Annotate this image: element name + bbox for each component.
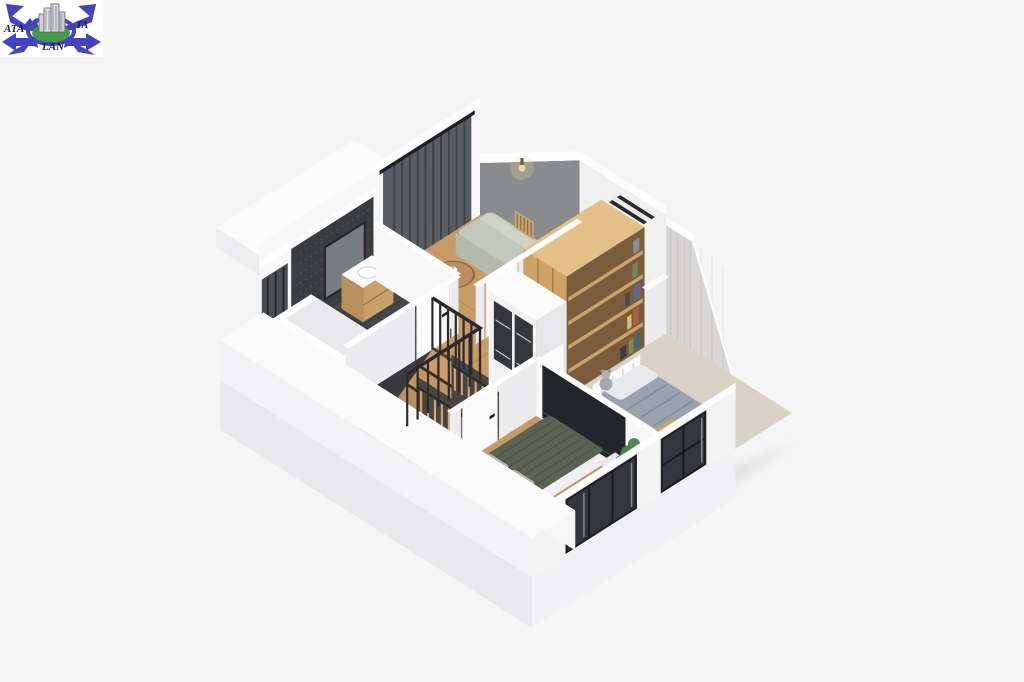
isometric-floorplan-scene: ATA TA LAN xyxy=(0,0,1024,682)
logo-text-bottom: LAN xyxy=(41,41,65,53)
wall-lamp xyxy=(510,156,534,180)
floorplan-render-page: ATA TA LAN xyxy=(0,0,1024,682)
logo-watermark: ATA TA LAN xyxy=(0,0,103,57)
logo-text-right: TA xyxy=(76,20,89,31)
teddy-bear xyxy=(600,369,613,390)
logo-text-left: ATA xyxy=(3,23,24,35)
